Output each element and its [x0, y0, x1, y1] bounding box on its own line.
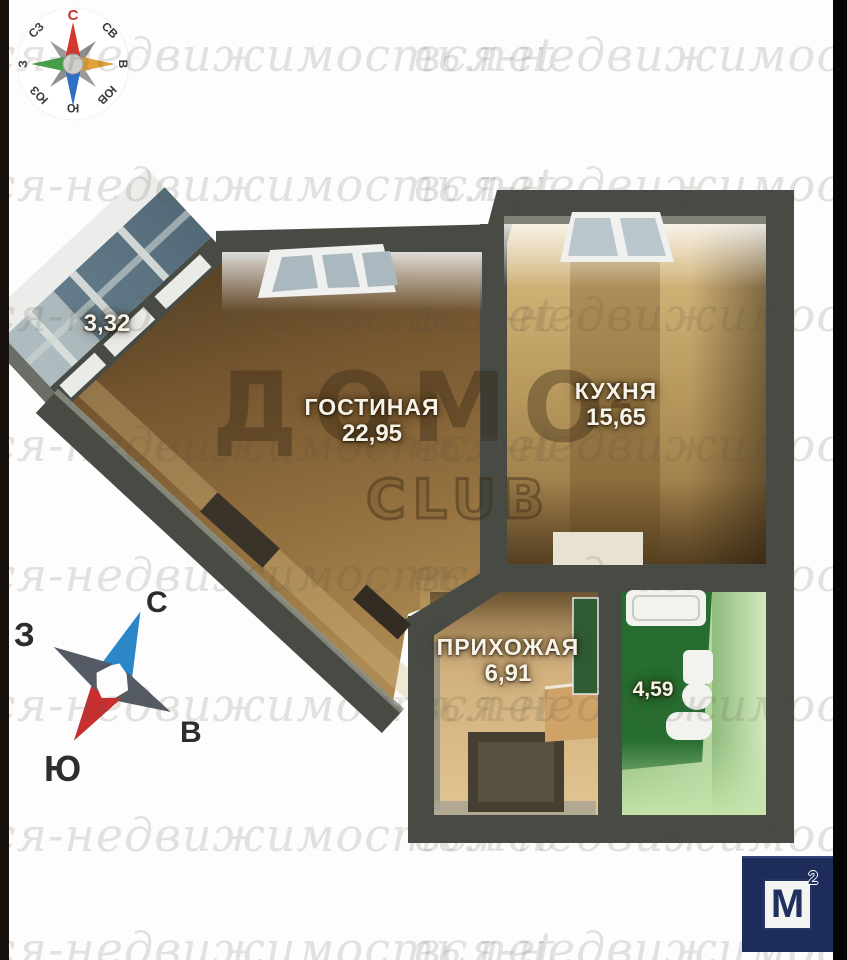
m2-logo-sup: 2: [808, 868, 818, 889]
kitchen-name: КУХНЯ: [575, 378, 657, 404]
rose-label-s: Ю: [67, 101, 79, 115]
hall-left-wall: [408, 616, 434, 815]
kitchen-label: КУХНЯ 15,65: [575, 378, 657, 432]
living-room-label: ГОСТИНАЯ 22,95: [305, 394, 440, 448]
bathroom-bottom-wall-face: [622, 740, 766, 815]
kitchen-area: 15,65: [575, 404, 657, 432]
star-east-arrow: [112, 671, 178, 726]
kitchen-window-pane: [568, 218, 618, 256]
bottom-wall: [408, 815, 794, 843]
toilet-tank: [683, 650, 713, 684]
rose-center: [63, 54, 83, 74]
m2-logo-letter: М: [771, 882, 804, 927]
toilet-bowl: [682, 682, 712, 710]
hall-bath-wall: [598, 592, 622, 815]
rose-label-e: В: [116, 60, 130, 69]
star-label-w: З: [14, 616, 35, 654]
kitchen-bottom-wall: [480, 564, 794, 592]
right-wall: [766, 190, 794, 843]
m2-logo-box: М 2: [763, 879, 812, 930]
star-label-e: В: [180, 716, 202, 750]
direction-star: [0, 560, 230, 800]
hall-name: ПРИХОЖАЯ: [437, 634, 580, 660]
club-watermark: CLUB: [366, 468, 551, 531]
bathroom-area: 4,59: [633, 678, 674, 702]
star-label-s: Ю: [44, 748, 81, 790]
star-west-arrow: [45, 633, 113, 691]
compass-rose: С СВ В ЮВ Ю ЮЗ З СЗ: [8, 2, 138, 128]
rose-label-w: З: [16, 60, 30, 68]
m2-logo: М 2: [742, 856, 834, 952]
balcony-area: 3,32: [84, 310, 131, 338]
living-room-name: ГОСТИНАЯ: [305, 394, 440, 420]
hall-area: 6,91: [437, 660, 580, 688]
star-south-arrow: [60, 679, 122, 750]
right-edge-strip: [833, 0, 847, 960]
rose-label-n: С: [68, 7, 79, 24]
floorplan-page: ДОМО2 CLUB вся-недвижимость.net вся-недв…: [0, 0, 847, 960]
hall-rug-inner: [478, 742, 554, 802]
living-room-area: 22,95: [305, 420, 440, 448]
sink: [666, 712, 712, 740]
hall-label: ПРИХОЖАЯ 6,91: [437, 634, 580, 688]
balcony-label: 3,32: [84, 310, 131, 338]
star-label-n: С: [146, 586, 168, 620]
kitchen-counter: [553, 532, 643, 565]
left-edge-strip: [0, 0, 9, 960]
bathroom-label: 4,59: [633, 678, 674, 702]
